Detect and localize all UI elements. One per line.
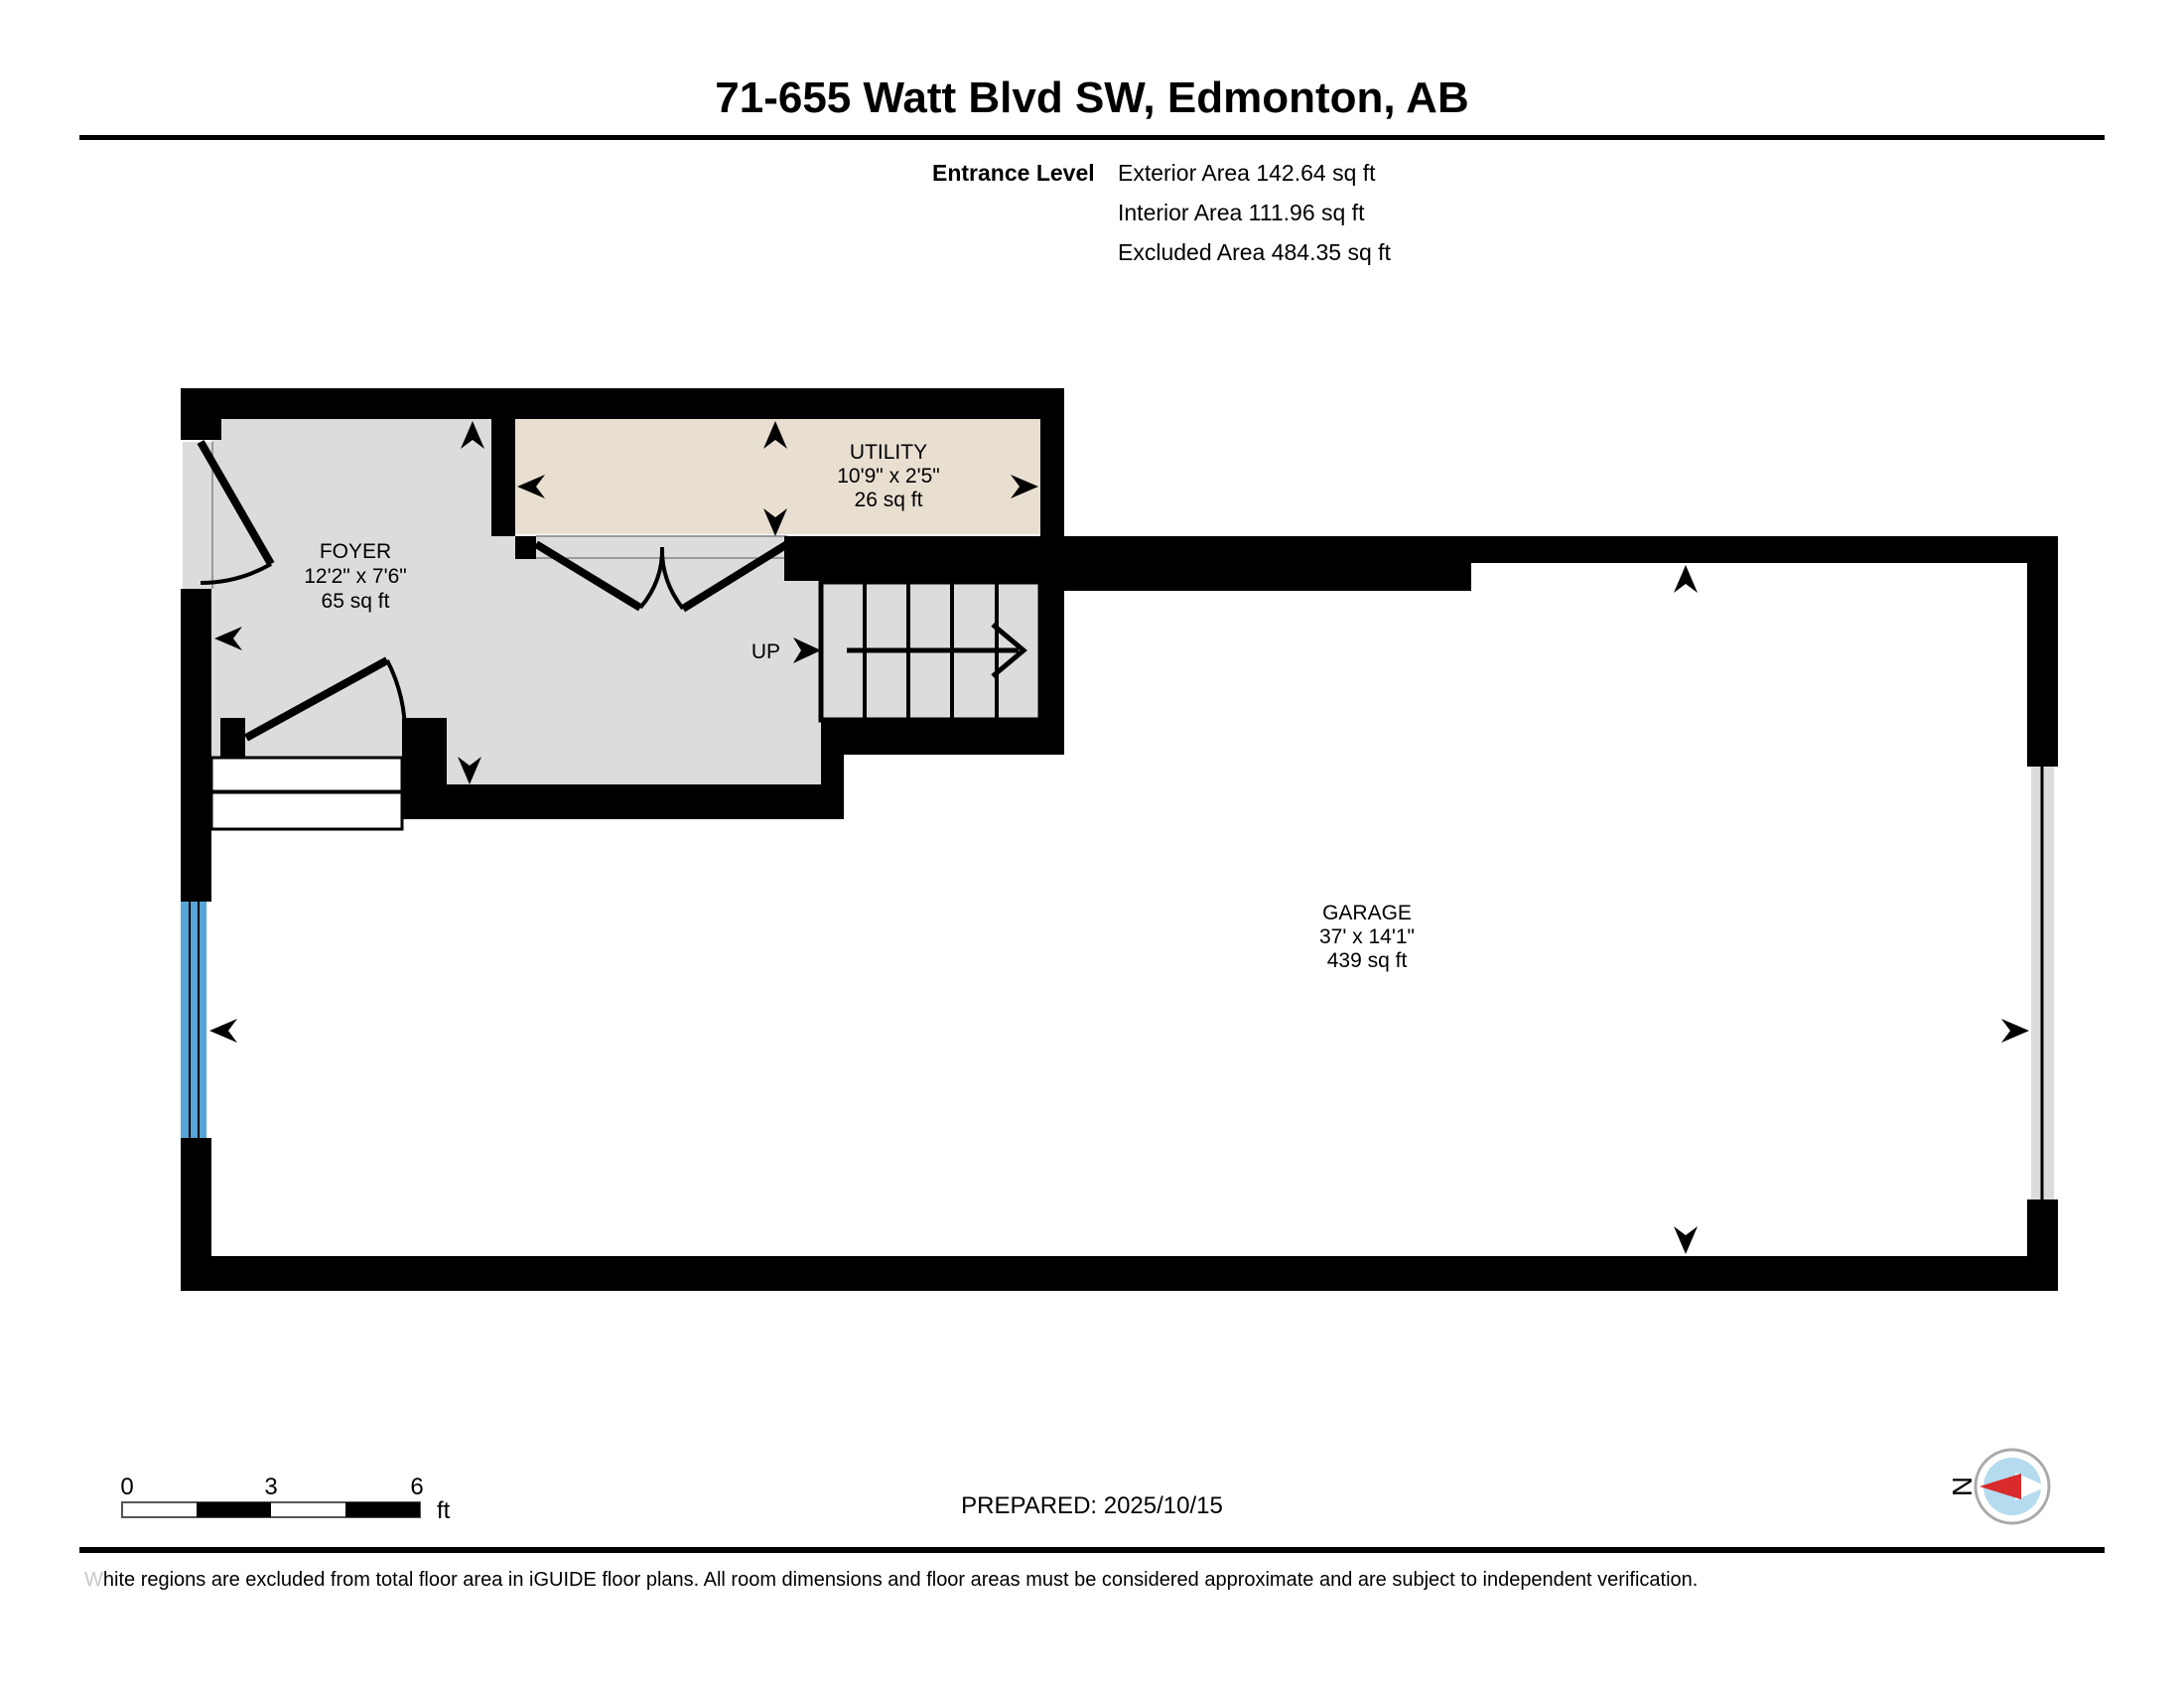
compass-icon: N — [1947, 1450, 2049, 1523]
garage-overhead-door-right — [2031, 767, 2054, 1199]
dimension-arrow-up-icon — [1674, 565, 1698, 593]
garage-door-panel — [181, 902, 206, 1138]
scale-bar: 0 3 6 ft — [120, 1474, 450, 1524]
level-label: Entrance Level — [932, 160, 1095, 186]
scale-bar-segment — [345, 1502, 420, 1517]
compass-north-label: N — [1947, 1477, 1978, 1496]
entry-threshold-floor — [183, 442, 212, 589]
entry-steps — [211, 758, 402, 829]
step — [211, 758, 402, 791]
wall — [1044, 536, 1471, 591]
room-dims: 10'9" x 2'5" — [837, 465, 940, 488]
scale-bar-segment — [197, 1502, 271, 1517]
wall — [181, 388, 1064, 419]
wall — [515, 536, 536, 559]
wall — [2031, 761, 2054, 767]
room-dims: 37' x 14'1" — [1319, 925, 1415, 948]
room-label-garage: GARAGE 37' x 14'1" 439 sq ft — [1319, 902, 1415, 972]
wall — [1471, 536, 2058, 563]
wall — [402, 718, 447, 819]
wall — [491, 419, 515, 536]
exterior-area: Exterior Area 142.64 sq ft — [1118, 160, 1376, 186]
dimension-arrow-down-icon — [1674, 1226, 1698, 1254]
footer-divider — [79, 1547, 2105, 1553]
scale-tick-label: 6 — [410, 1474, 423, 1500]
disclaimer-text: hite regions are excluded from total flo… — [103, 1569, 1698, 1591]
wall — [2031, 1199, 2054, 1205]
page-title: 71-655 Watt Blvd SW, Edmonton, AB — [715, 73, 1468, 122]
disclaimer-lead: W — [84, 1569, 103, 1591]
wall — [821, 720, 1064, 755]
room-area: 439 sq ft — [1327, 949, 1408, 972]
scale-tick-label: 3 — [264, 1474, 277, 1500]
scale-tick-label: 0 — [120, 1474, 133, 1500]
footer: 0 3 6 ft PREPARED: 2025/10/15 N White re… — [79, 1450, 2105, 1591]
interior-area: Interior Area 111.96 sq ft — [1118, 200, 1365, 225]
dimension-arrow-left-icon — [209, 1019, 237, 1043]
room-name: FOYER — [320, 540, 391, 563]
wall — [181, 388, 221, 440]
prepared-date: PREPARED: 2025/10/15 — [961, 1492, 1223, 1519]
wall — [181, 589, 211, 902]
floor-plan-canvas: 71-655 Watt Blvd SW, Edmonton, AB Entran… — [0, 0, 2184, 1688]
wall — [1040, 419, 1064, 755]
floorplan-page: 71-655 Watt Blvd SW, Edmonton, AB Entran… — [0, 0, 2184, 1688]
scale-unit: ft — [437, 1497, 451, 1524]
floor-plan: UP — [181, 388, 2058, 1291]
wall — [2027, 1199, 2058, 1291]
header-divider — [79, 135, 2105, 140]
wall — [181, 1256, 2058, 1291]
step — [211, 792, 402, 829]
wall — [447, 784, 844, 819]
up-label: UP — [751, 640, 780, 663]
wall — [220, 718, 245, 758]
room-name: GARAGE — [1322, 902, 1412, 924]
room-area: 65 sq ft — [322, 590, 390, 613]
garage-overhead-door — [181, 902, 206, 1138]
disclaimer: White regions are excluded from total fl… — [84, 1569, 1698, 1591]
header: 71-655 Watt Blvd SW, Edmonton, AB Entran… — [79, 73, 2105, 265]
excluded-area: Excluded Area 484.35 sq ft — [1118, 239, 1392, 265]
wall — [821, 720, 844, 784]
wall — [2027, 536, 2058, 767]
dimension-arrow-right-icon — [2001, 1019, 2029, 1043]
room-name: UTILITY — [850, 441, 927, 464]
room-dims: 12'2" x 7'6" — [304, 565, 407, 588]
room-area: 26 sq ft — [855, 489, 923, 511]
